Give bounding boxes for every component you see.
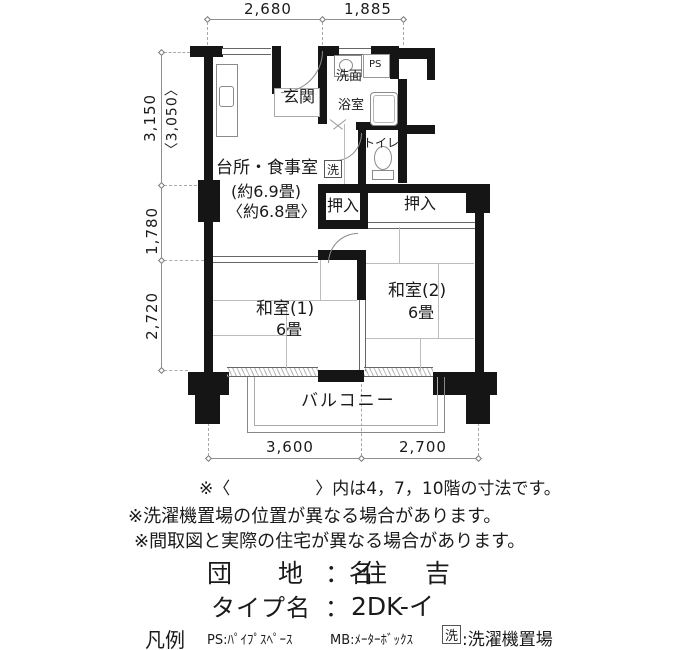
dim-tick	[204, 16, 211, 23]
dim-tick	[319, 16, 326, 23]
note-laundry-position: ※洗濯機置場の位置が異なる場合があります。	[128, 502, 501, 528]
room-label-oshiire-left: 押入	[327, 198, 359, 215]
legend-mb: MB:ﾒｰﾀｰﾎﾞｯｸｽ	[330, 629, 413, 648]
dim-line-top	[207, 19, 403, 20]
tatami-line	[420, 338, 421, 371]
room-label-yokushitsu: 浴室	[338, 99, 364, 113]
type-name-label: タイプ名	[211, 588, 311, 623]
laundry-symbol-box: 洗	[324, 160, 342, 178]
room-label-dk: 台所・食事室	[216, 160, 318, 178]
legend-laundry-key: 洗	[445, 625, 458, 644]
estate-name-value: 住 吉	[362, 554, 465, 590]
extension-line	[403, 22, 404, 45]
legend-heading: 凡例	[145, 624, 185, 650]
legend-ps-value: ﾊﾟｲﾌﾟｽﾍﾟｰｽ	[227, 633, 292, 648]
dim-line-left	[161, 52, 162, 370]
wall-segment	[318, 220, 368, 229]
legend-laundry: :洗濯機置場	[462, 625, 553, 650]
wall-pillar	[466, 184, 490, 213]
legend-ps-key: PS:	[207, 633, 227, 648]
hall-partition-line	[344, 124, 345, 184]
extension-line	[322, 22, 323, 45]
wall-pillar	[195, 395, 220, 424]
dim-tick	[400, 16, 407, 23]
dim-bottom-right: 2,700	[399, 440, 447, 456]
wall-segment	[390, 46, 399, 79]
sliding-partition	[359, 300, 366, 371]
extension-line	[164, 52, 190, 53]
dim-bottom-left: 3,600	[266, 440, 314, 456]
floorplan-sheet: 2,680 1,885 3,150 〈3,050〉 1,780 2,720 3,…	[0, 0, 700, 650]
legend-laundry-box: 洗	[442, 625, 461, 644]
dim-left-3: 2,720	[145, 286, 161, 346]
tatami-line	[320, 260, 321, 300]
room-label-oshiire-right: 押入	[404, 196, 436, 213]
room-label-laundry: 洗	[327, 161, 339, 178]
wall-segment	[357, 258, 366, 300]
room-label-washitsu2: 和室(2)	[388, 283, 446, 301]
legend-mb-value: ﾒｰﾀｰﾎﾞｯｸｽ	[355, 633, 414, 648]
dim-top-left: 2,680	[244, 2, 292, 18]
window-balcony	[364, 367, 433, 377]
wall-pillar	[466, 395, 490, 424]
dim-left-2: 1,780	[145, 201, 161, 261]
wall-segment	[318, 184, 490, 193]
dim-tick	[205, 455, 212, 462]
type-name-value: 2DK-イ	[351, 587, 434, 623]
kitchen-sink	[219, 86, 234, 107]
toilet-tank	[372, 170, 394, 180]
extension-line	[164, 185, 197, 186]
dim-tick	[158, 49, 165, 56]
room-label-washitsu1: 和室(1)	[256, 301, 314, 319]
wall-segment	[399, 48, 435, 59]
room-label-washitsu1-size: 6畳	[276, 322, 302, 339]
dim-left-1: 3,150	[143, 88, 159, 148]
sliding-door-closet	[368, 222, 475, 229]
dim-left-1-alt: 〈3,050〉	[166, 84, 181, 156]
room-label-balcony: バルコニー	[301, 393, 396, 411]
extension-line	[164, 370, 188, 371]
wall-segment	[398, 79, 407, 183]
legend-ps: PS:ﾊﾟｲﾌﾟｽﾍﾟｰｽ	[207, 629, 292, 648]
room-label-genkan: 玄関	[283, 89, 315, 106]
extension-line	[164, 260, 204, 261]
type-name-separator: ：	[325, 588, 349, 623]
door-arc-washitsu	[328, 233, 358, 263]
legend-laundry-value: 洗濯機置場	[468, 630, 553, 650]
wall-segment	[407, 125, 435, 134]
room-label-ps: PS	[369, 60, 381, 71]
note-plan-difference: ※間取図と実際の住宅が異なる場合があります。	[134, 527, 525, 553]
extension-line	[207, 22, 208, 45]
note-floor-dimension: ※〈 〉内は4，7，10階の寸法です。	[199, 474, 561, 499]
wall-pillar	[198, 180, 220, 222]
tatami-line	[399, 227, 400, 263]
room-label-toilet: トイレ	[363, 137, 399, 150]
window	[222, 48, 271, 55]
wall-segment	[272, 46, 281, 94]
window-balcony	[227, 367, 318, 377]
room-label-washitsu2-size: 6畳	[408, 305, 434, 322]
dim-tick	[358, 455, 365, 462]
dim-line-bottom	[208, 458, 478, 459]
room-label-dk-size-alt: 〈約6.8畳〉	[227, 204, 316, 221]
wall-segment	[475, 213, 484, 375]
bath-door-line	[330, 119, 343, 130]
legend-mb-key: MB:	[330, 633, 355, 648]
dim-top-right: 1,885	[344, 2, 392, 18]
wall-segment	[427, 59, 435, 80]
dim-tick	[158, 367, 165, 374]
bathtub-inner	[373, 95, 395, 123]
room-label-dk-size: (約6.9畳)	[231, 184, 301, 201]
dim-tick	[158, 182, 165, 189]
estate-name-separator: ：	[325, 554, 350, 590]
room-label-senmen: 洗面	[336, 70, 362, 84]
tatami-line	[366, 263, 474, 264]
wall-pillar	[188, 372, 229, 395]
sliding-partition	[213, 256, 318, 263]
dim-tick	[475, 455, 482, 462]
